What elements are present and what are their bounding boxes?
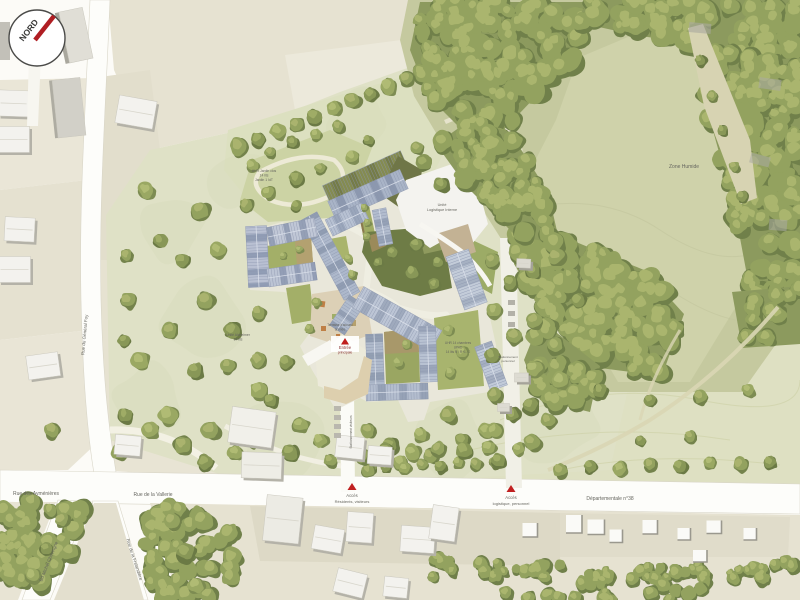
svg-text:Logistique Interne: Logistique Interne — [427, 208, 457, 212]
svg-text:Départementale n°38: Départementale n°38 — [586, 496, 634, 502]
svg-text:14 lits R / R+1 / 2: 14 lits R / R+1 / 2 — [446, 350, 471, 354]
svg-text:UPAD: UPAD — [454, 346, 463, 350]
svg-text:Unité Alzheimer: Unité Alzheimer — [226, 333, 251, 337]
svg-text:14 lits: 14 lits — [260, 174, 269, 178]
svg-text:UHR Jardin clos: UHR Jardin clos — [252, 169, 277, 173]
svg-text:Jardin 1 IdT: Jardin 1 IdT — [255, 178, 273, 182]
svg-text:Stationnement visiteurs: Stationnement visiteurs — [349, 415, 353, 449]
svg-text:Rue des Ayménières: Rue des Ayménières — [13, 491, 60, 497]
svg-text:Unité: Unité — [438, 203, 447, 207]
svg-text:animée: animée — [335, 328, 346, 332]
svg-text:Zone Humide: Zone Humide — [669, 164, 699, 170]
svg-text:UHR 14 chambres: UHR 14 chambres — [445, 341, 472, 345]
svg-text:Entrée: Entrée — [339, 345, 352, 350]
svg-text:personnel: personnel — [501, 359, 515, 363]
svg-text:logistique, personnel: logistique, personnel — [493, 501, 530, 506]
svg-text:Terrasse d'accueil: Terrasse d'accueil — [327, 323, 353, 327]
svg-text:Rue de la Vallerie: Rue de la Vallerie — [133, 492, 172, 498]
svg-text:Résidents, visiteurs: Résidents, visiteurs — [335, 499, 370, 504]
svg-text:Accès: Accès — [505, 495, 516, 500]
svg-text:principale: principale — [338, 351, 353, 355]
svg-text:Accès: Accès — [346, 493, 357, 498]
svg-text:14 lits: 14 lits — [234, 338, 243, 342]
